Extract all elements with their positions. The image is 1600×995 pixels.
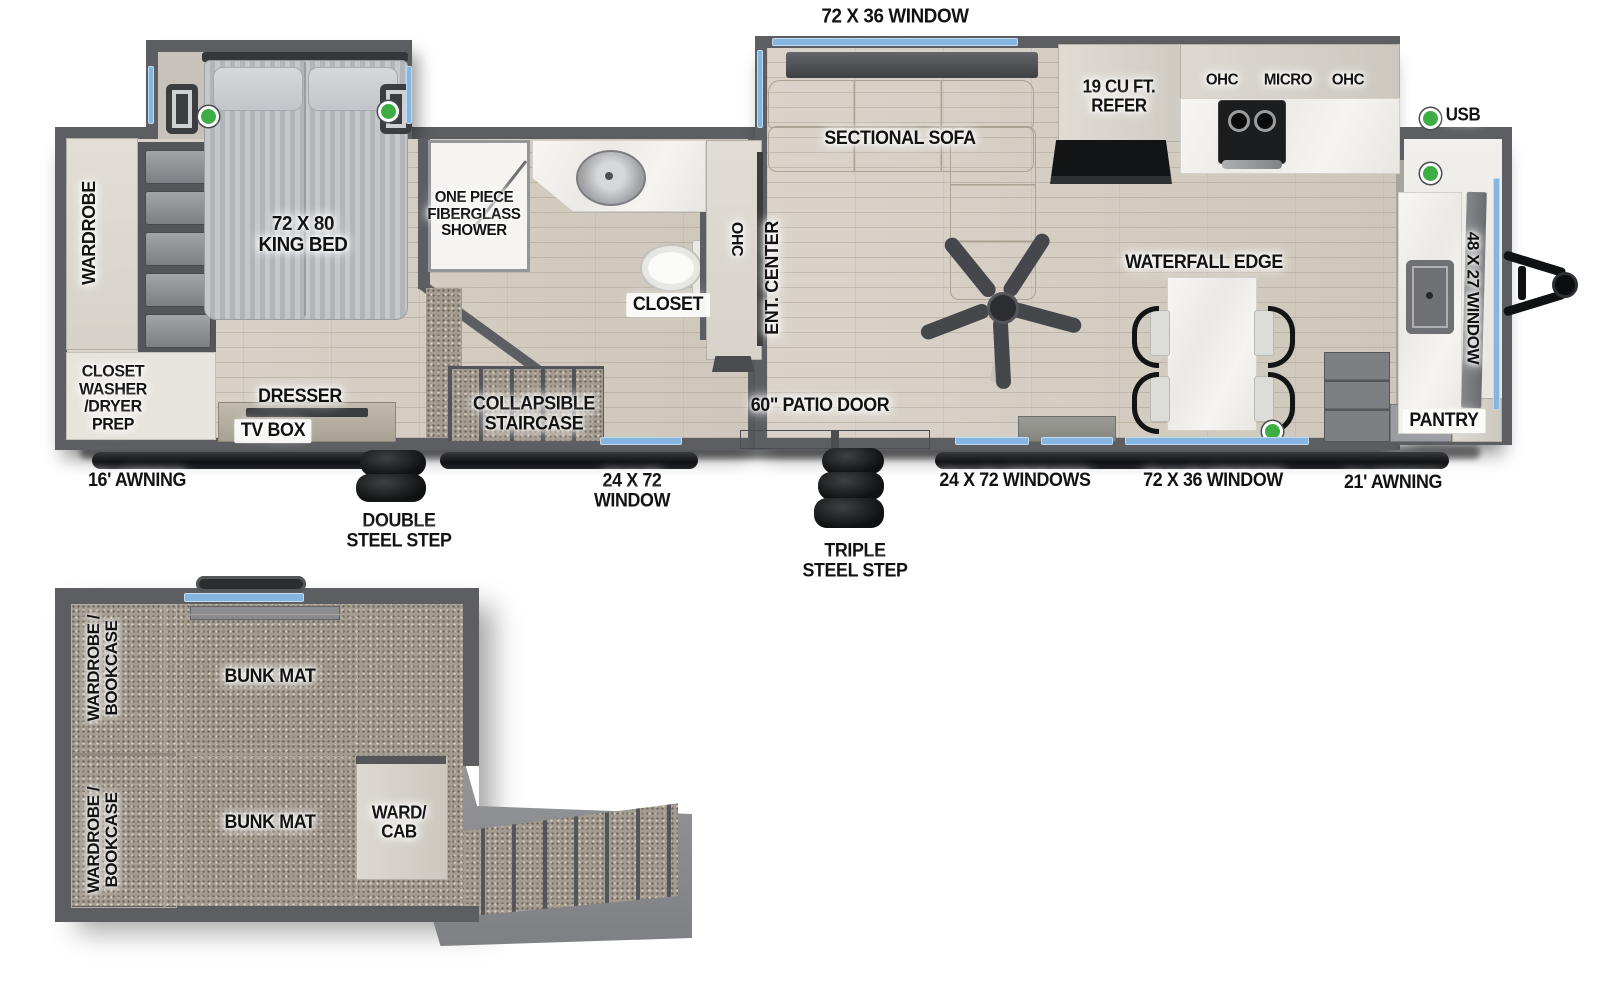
ward-cab-top-edge: [356, 756, 446, 764]
label-window-24x72: 24 X 72 WINDOW: [594, 471, 670, 511]
label-bunk-mat-2: BUNK MAT: [225, 813, 316, 833]
drawer: [145, 191, 211, 225]
bunk-roof-hatch: [196, 576, 306, 592]
label-patio-door: 60" PATIO DOOR: [751, 396, 890, 416]
label-double-step: DOUBLE STEEL STEP: [346, 511, 451, 551]
label-collapsible-staircase: COLLAPSIBLE STAIRCASE: [473, 394, 595, 434]
tv-on-dresser: [246, 408, 368, 417]
oven-handle: [1222, 160, 1282, 169]
label-sectional-sofa: SECTIONAL SOFA: [824, 129, 975, 149]
front-window-48x27: [1493, 178, 1500, 410]
awning-16ft-bar2: [440, 452, 698, 469]
label-wardrobe-bookcase-2: WARDROBE / BOOKCASE: [85, 787, 121, 894]
drawer: [145, 314, 211, 348]
label-usb: USB: [1446, 106, 1481, 125]
front-sink-drain: [1426, 292, 1433, 299]
nightstand-window: [166, 84, 198, 134]
triple-steel-step: [822, 448, 884, 474]
window-72x36-bottom: [1125, 437, 1309, 445]
pillow: [213, 67, 303, 111]
bedroom-slide-window-right: [406, 66, 412, 124]
label-shower: ONE PIECE FIBERGLASS SHOWER: [427, 190, 520, 240]
label-window-72x36-top: 72 X 36 WINDOW: [821, 7, 968, 28]
drawer: [145, 273, 211, 307]
label-window-48x27: 48 X 27 WINDOW: [1464, 232, 1481, 364]
label-king-bed: 72 X 80 KING BED: [259, 214, 348, 256]
bath-sink-drain: [605, 172, 613, 180]
stove-cooktop: [1218, 100, 1286, 164]
window-24x72-b: [1041, 437, 1113, 445]
triple-steel-step: [818, 472, 884, 500]
bed-center-crease: [304, 62, 306, 316]
awning-16ft-bar: [92, 452, 380, 469]
rv-floorplan: 72 X 36 WINDOW USB WARDROBE 72 X 80 KING…: [0, 0, 1600, 995]
toilet-bowl: [640, 244, 702, 292]
label-wardrobe: WARDROBE: [80, 181, 98, 285]
usb-dot-bed-left: [198, 106, 219, 127]
label-ohc-left: OHC: [1206, 73, 1238, 90]
kitchen-counter: [1180, 98, 1400, 174]
label-dresser: DRESSER: [258, 387, 342, 407]
label-refer: 19 CU FT. REFER: [1083, 77, 1156, 114]
double-steel-step: [356, 474, 426, 502]
label-awning-21: 21' AWNING: [1344, 473, 1442, 493]
window-72x36-top: [772, 38, 1018, 46]
sofa-slide-side-window: [757, 50, 763, 128]
window-24x72-a: [955, 437, 1029, 445]
label-waterfall-edge: WATERFALL EDGE: [1125, 253, 1283, 273]
double-steel-step: [360, 450, 426, 476]
window-24x72-entry: [600, 437, 682, 445]
drawer-stack: [1324, 352, 1390, 442]
bunk-window: [184, 593, 304, 602]
hitch-crossbar: [1518, 266, 1526, 300]
label-micro: MICRO: [1264, 73, 1312, 90]
hitch-coupler: [1552, 272, 1578, 298]
label-ward-cab: WARD/ CAB: [372, 803, 427, 840]
label-ohc-entcenter: OHC: [728, 222, 744, 256]
label-wardrobe-bookcase-1: WARDROBE / BOOKCASE: [85, 615, 121, 722]
label-windows-24x72: 24 X 72 WINDOWS: [939, 471, 1090, 491]
usb-dot-bed-right: [378, 101, 399, 122]
usb-dot-top: [1420, 108, 1441, 129]
awning-21ft-bar: [935, 452, 1449, 469]
bunkroom-wall-right: [463, 588, 479, 766]
label-window-72x36-bottom: 72 X 36 WINDOW: [1143, 471, 1283, 491]
patio-door: [740, 430, 930, 449]
label-closet-wd-prep: CLOSET WASHER /DRYER PREP: [79, 363, 147, 434]
label-pantry: PANTRY: [1403, 409, 1485, 433]
label-awning-16: 16' AWNING: [88, 471, 186, 491]
sofa-back: [768, 80, 1034, 128]
label-bunk-mat-1: BUNK MAT: [225, 667, 316, 687]
usb-dot-front-counter: [1420, 163, 1441, 184]
kitchen-island: [1167, 277, 1257, 431]
wardrobe-cabinet: [66, 138, 138, 350]
ent-center-base: [712, 356, 754, 372]
drawer: [145, 232, 211, 266]
bunkroom-wall-left: [55, 588, 71, 922]
label-triple-step: TRIPLE STEEL STEP: [802, 541, 907, 581]
burner: [1228, 110, 1250, 132]
triple-steel-step: [814, 498, 884, 528]
label-bath-closet: CLOSET: [626, 293, 709, 317]
burner: [1254, 110, 1276, 132]
label-ohc-right: OHC: [1332, 73, 1364, 90]
fireplace: [1050, 140, 1172, 184]
sofa-slide-topper: [786, 52, 1038, 78]
label-ent-center: ENT. CENTER: [763, 221, 781, 335]
bedroom-slide-window-left: [148, 66, 154, 124]
bunkroom-wall-bottom: [55, 906, 479, 922]
label-tv-box: TV BOX: [234, 419, 311, 443]
drawer: [145, 150, 211, 184]
